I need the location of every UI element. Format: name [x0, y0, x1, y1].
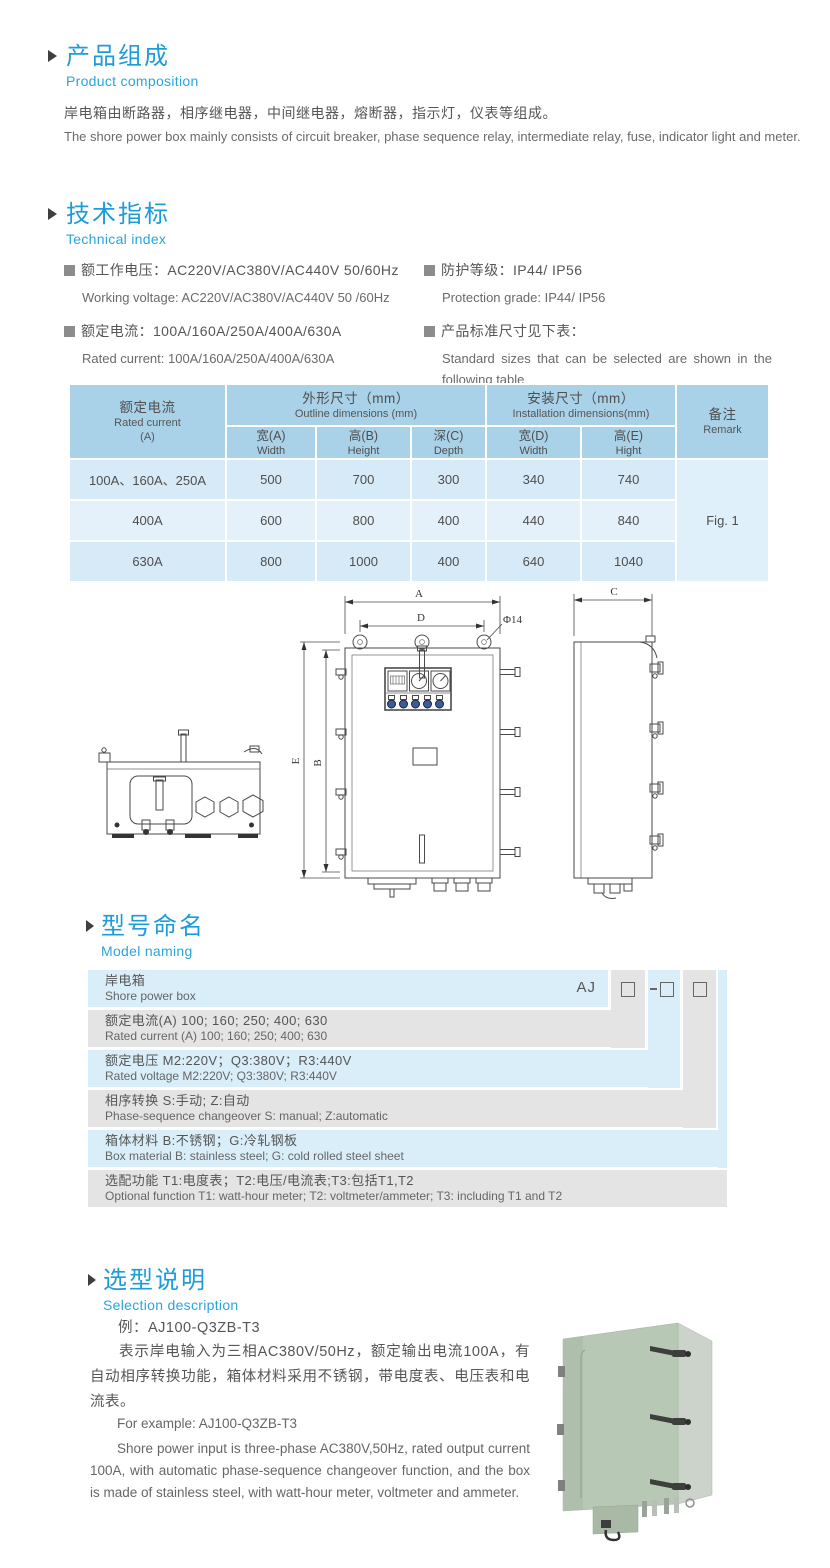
svg-text:E: E [290, 757, 302, 764]
svg-text:Φ14: Φ14 [503, 614, 523, 626]
col-header-remark: 备注 Remark [676, 384, 769, 459]
svg-text:D: D [417, 612, 425, 624]
section-title-zh: 产品组成 [66, 44, 199, 70]
bullet-square-icon [424, 265, 435, 276]
code-dash [650, 988, 657, 990]
spec-item: 防护等级：IP44/ IP56 Protection grade: IP44/ … [424, 260, 769, 308]
spec-zh: 防护等级：IP44/ IP56 [441, 260, 582, 280]
naming-row-rated-current: 额定电流(A) 100; 160; 250; 400; 630 Rated cu… [88, 1010, 645, 1047]
bullet-square-icon [424, 326, 435, 337]
model-example-en: For example: AJ100-Q3ZB-T3 [117, 1416, 297, 1431]
dimension-table: 额定电流 Rated current (A) 外形尺寸（mm） Outline … [68, 383, 770, 583]
naming-row-rated-voltage: 额定电压 M2:220V；Q3:380V；R3:440V Rated volta… [88, 1050, 680, 1087]
remark-cell: Fig. 1 [676, 459, 769, 582]
col-header-height-b: 高(B)Height [316, 426, 411, 459]
spec-zh: 产品标准尺寸见下表： [441, 321, 585, 341]
composition-text-zh: 岸电箱由断路器，相序继电器，中间继电器，熔断器，指示灯，仪表等组成。 [64, 103, 784, 123]
naming-col-current [611, 970, 645, 1048]
svg-text:C: C [610, 586, 617, 598]
naming-col-voltage [648, 970, 680, 1088]
table-row: 400A 600 800 400 440 840 [69, 500, 769, 541]
selection-desc-en: Shore power input is three-phase AC380V,… [90, 1438, 530, 1504]
product-photo [538, 1298, 748, 1553]
spec-en: Rated current: 100A/160A/250A/400A/630A [82, 348, 409, 369]
spec-list-left: 额工作电压：AC220V/AC380V/AC440V 50/60Hz Worki… [64, 260, 409, 382]
section-title-en: Selection description [103, 1297, 239, 1313]
spec-zh: 额工作电压：AC220V/AC380V/AC440V 50/60Hz [81, 260, 399, 280]
code-box [621, 982, 635, 997]
model-naming-ladder: 岸电箱 Shore power box AJ 额定电流(A) 100; 160;… [88, 970, 748, 1210]
col-group-outline: 外形尺寸（mm） Outline dimensions (mm) [226, 384, 486, 426]
section-product-composition-heading: 产品组成 Product composition [48, 44, 199, 89]
section-arrow-icon [48, 50, 57, 62]
datasheet-page: 产品组成 Product composition 岸电箱由断路器，相序继电器，中… [0, 0, 830, 1568]
col-group-installation: 安装尺寸（mm） Installation dimensions(mm) [486, 384, 676, 426]
naming-col-material [718, 970, 727, 1168]
section-arrow-icon [48, 208, 57, 220]
front-view: A D Φ14 E B [290, 588, 523, 897]
model-example-zh: 例：AJ100-Q3ZB-T3 [118, 1316, 260, 1337]
bottom-view [99, 730, 263, 838]
code-box [693, 982, 707, 997]
spec-zh: 额定电流：100A/160A/250A/400A/630A [81, 321, 342, 341]
section-title-en: Product composition [66, 73, 199, 89]
technical-drawing: A D Φ14 E B [0, 580, 830, 900]
spec-item: 产品标准尺寸见下表： Standard sizes that can be se… [424, 321, 769, 390]
section-title-en: Model naming [101, 943, 205, 959]
naming-row-box-material: 箱体材料 B:不锈钢；G:冷轧钢板 Box material B: stainl… [88, 1130, 727, 1167]
section-title-zh: 选型说明 [103, 1268, 239, 1294]
section-title-zh: 技术指标 [66, 202, 170, 228]
table-row: 630A 800 1000 400 640 1040 [69, 541, 769, 582]
section-model-naming-heading: 型号命名 Model naming [86, 914, 205, 959]
model-prefix: AJ [576, 979, 596, 996]
svg-text:B: B [312, 759, 324, 766]
col-header-width-a: 宽(A)Width [226, 426, 316, 459]
col-header-depth-c: 深(C)Depth [411, 426, 486, 459]
table-row: 100A、160A、250A 500 700 300 340 740 Fig. … [69, 459, 769, 500]
side-view: C [574, 586, 663, 898]
bullet-square-icon [64, 326, 75, 337]
indicator-lights [388, 696, 444, 709]
naming-col-phase [683, 970, 716, 1128]
col-header-height-e: 高(E)Hight [581, 426, 676, 459]
section-title-zh: 型号命名 [101, 914, 205, 940]
svg-text:A: A [415, 588, 423, 600]
section-arrow-icon [86, 920, 94, 932]
meter-panel [385, 668, 451, 710]
bullet-square-icon [64, 265, 75, 276]
col-header-width-d: 宽(D)Width [486, 426, 581, 459]
spec-item: 额定电流：100A/160A/250A/400A/630A Rated curr… [64, 321, 409, 369]
code-box [660, 982, 674, 997]
naming-row-optional-function: 选配功能 T1:电度表；T2:电压/电流表;T3:包括T1,T2 Optiona… [88, 1170, 727, 1207]
section-technical-index-heading: 技术指标 Technical index [48, 202, 170, 247]
section-arrow-icon [88, 1274, 96, 1286]
spec-item: 额工作电压：AC220V/AC380V/AC440V 50/60Hz Worki… [64, 260, 409, 308]
spec-list-right: 防护等级：IP44/ IP56 Protection grade: IP44/ … [424, 260, 769, 403]
naming-row-product: 岸电箱 Shore power box AJ [88, 970, 608, 1007]
naming-row-phase-sequence: 相序转换 S:手动; Z:自动 Phase-sequence changeove… [88, 1090, 716, 1127]
section-selection-heading: 选型说明 Selection description [88, 1268, 239, 1313]
composition-text-en: The shore power box mainly consists of c… [64, 129, 804, 144]
spec-en: Working voltage: AC220V/AC380V/AC440V 50… [82, 287, 409, 308]
section-title-en: Technical index [66, 231, 170, 247]
selection-desc-zh: 表示岸电输入为三相AC380V/50Hz，额定输出电流100A，有自动相序转换功… [90, 1340, 530, 1415]
col-header-rated-current: 额定电流 Rated current (A) [69, 384, 226, 459]
spec-en: Protection grade: IP44/ IP56 [442, 287, 769, 308]
